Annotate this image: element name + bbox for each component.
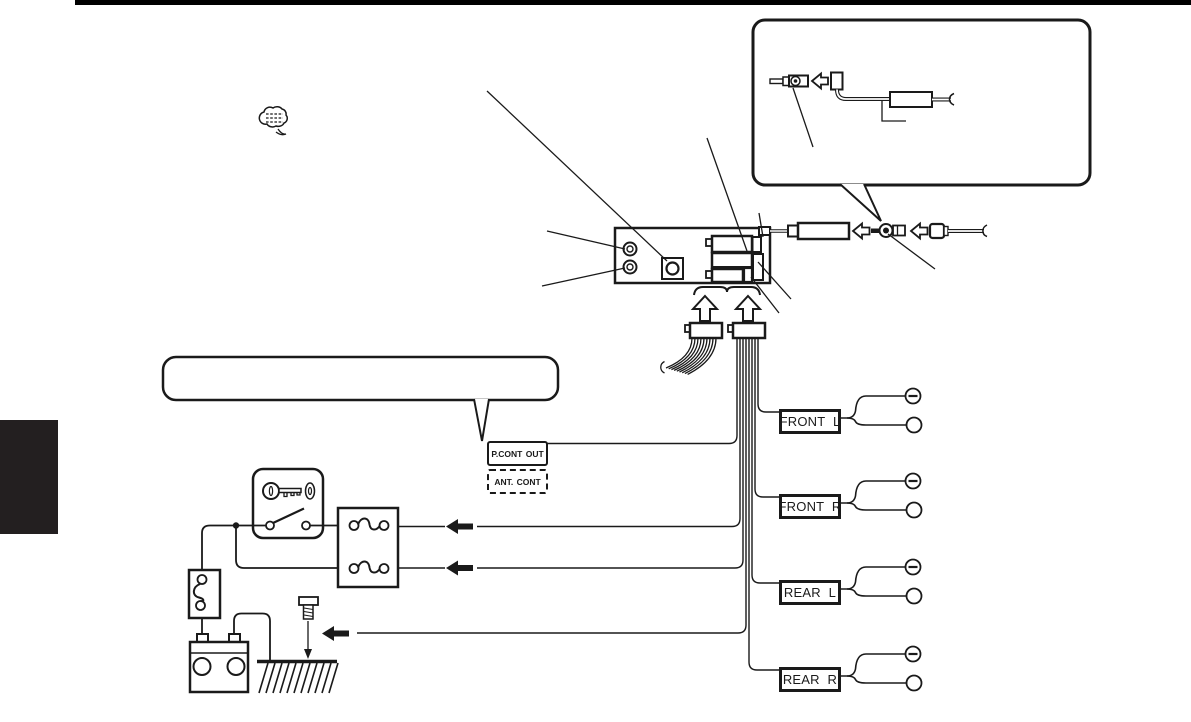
antenna-socket <box>662 258 683 279</box>
front-l-wire <box>758 338 779 412</box>
insert-arrow-up-icon <box>736 296 760 321</box>
wiring-connector-sockets <box>706 236 763 282</box>
accessory-harness <box>661 338 716 374</box>
connect-arrow-icon <box>322 626 349 641</box>
ant-cont-label: ANT. CONT <box>487 469 548 494</box>
connector-brace <box>694 287 760 295</box>
insert-arrow-icon <box>853 224 870 239</box>
antenna-plug-chain <box>770 223 987 269</box>
ignition-switch <box>253 469 323 538</box>
car-battery <box>190 634 248 692</box>
manual-wiring-diagram-page: P.CONT OUT ANT. CONT FRONT L FRONT R REA… <box>0 0 1191 722</box>
callout-tail <box>474 399 489 441</box>
speaker-label-rear-l: REAR L <box>779 580 841 605</box>
antenna-adapter-callout <box>753 20 1090 221</box>
speaker-label-front-r: FRONT R <box>779 494 841 519</box>
p-cont-out-label: P.CONT OUT <box>487 441 548 466</box>
supply-wires <box>202 522 338 661</box>
speaker-label-rear-r: REAR R <box>779 667 841 692</box>
insert-arrow-icon <box>911 224 928 239</box>
connect-arrow-icon <box>446 519 473 534</box>
insert-arrow-up-icon <box>693 296 717 321</box>
insert-up-arrows <box>693 296 760 321</box>
power-connector <box>728 323 765 338</box>
inline-fuse <box>189 570 220 618</box>
rear-r-wire <box>749 338 779 670</box>
connect-arrow-icon <box>446 561 473 576</box>
chassis-hatching <box>259 663 338 693</box>
antenna-stub <box>759 227 770 235</box>
wiring-diagram-canvas <box>0 0 1191 722</box>
fuse-box <box>338 508 445 587</box>
speaker-leads <box>840 389 922 691</box>
disc-changer-cloud-icon <box>259 107 287 135</box>
down-arrowhead-icon <box>304 649 312 659</box>
callout-tail <box>840 184 881 221</box>
rear-l-wire <box>752 338 779 583</box>
leader-line <box>888 234 935 269</box>
accessory-connector <box>661 323 722 374</box>
head-unit-rear <box>615 227 770 283</box>
note-callout <box>163 357 558 441</box>
speaker-label-front-l: FRONT L <box>779 409 841 434</box>
junction-dot <box>233 522 239 528</box>
